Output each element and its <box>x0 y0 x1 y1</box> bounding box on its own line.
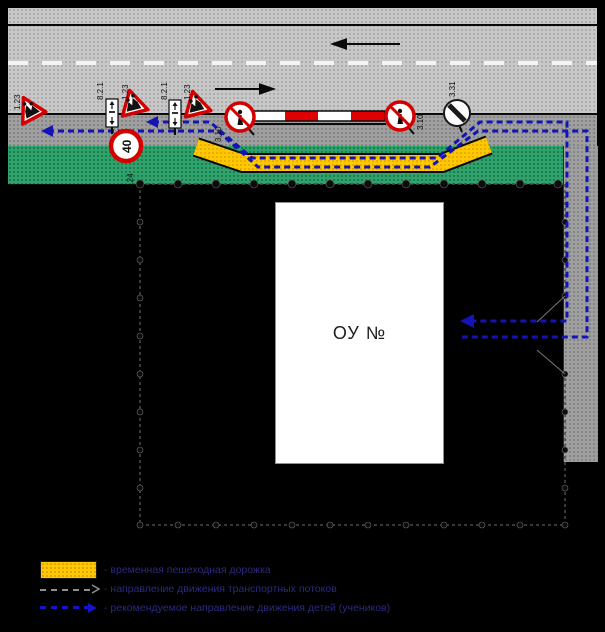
fence-posts <box>136 180 568 528</box>
label-children-2: 1.23 <box>183 84 192 100</box>
label-end-restrictions: 3.31 <box>448 81 457 97</box>
legend-route-label: - рекомендуемое направление движения дет… <box>104 602 390 614</box>
legend-walkway-swatch <box>40 561 97 579</box>
label-children-1: 1.23 <box>121 84 130 100</box>
label-children-far: 1.23 <box>13 94 22 110</box>
traffic-scheme: ОУ № <box>0 0 605 632</box>
legend-flow-swatch <box>40 589 90 591</box>
label-speed-limit: 3.24 <box>126 173 135 189</box>
sign-no-pedestrians-left <box>226 103 254 135</box>
legend: - временная пешеходная дорожка - направл… <box>0 552 605 627</box>
legend-walkway-label: - временная пешеходная дорожка <box>104 564 271 576</box>
sign-no-pedestrians-right <box>386 102 414 134</box>
legend-route-swatch <box>40 606 88 609</box>
label-no-ped-left: 3.10 <box>214 126 223 142</box>
legend-flow-label: - направление движения транспортных пото… <box>104 583 337 595</box>
children-route-arrows <box>41 116 474 328</box>
legend-route-arrow <box>88 603 97 613</box>
territory-fence <box>140 184 565 525</box>
sign-end-restrictions <box>444 100 470 132</box>
gate-opening-marks <box>537 296 565 374</box>
sign-speed-limit-40: 40 <box>111 131 141 161</box>
label-no-ped-right: 3.10 <box>416 114 425 130</box>
speed-limit-value: 40 <box>120 139 134 153</box>
legend-flow-arrow <box>90 583 102 595</box>
sign-zone-plate-1 <box>106 99 118 134</box>
work-zone-barrier <box>252 111 386 124</box>
label-plate-1: 8.2.1 <box>96 82 105 100</box>
label-plate-2: 8.2.1 <box>160 82 169 100</box>
traffic-flow-arrows <box>215 40 400 94</box>
scheme-overlay: 40 <box>0 0 605 632</box>
